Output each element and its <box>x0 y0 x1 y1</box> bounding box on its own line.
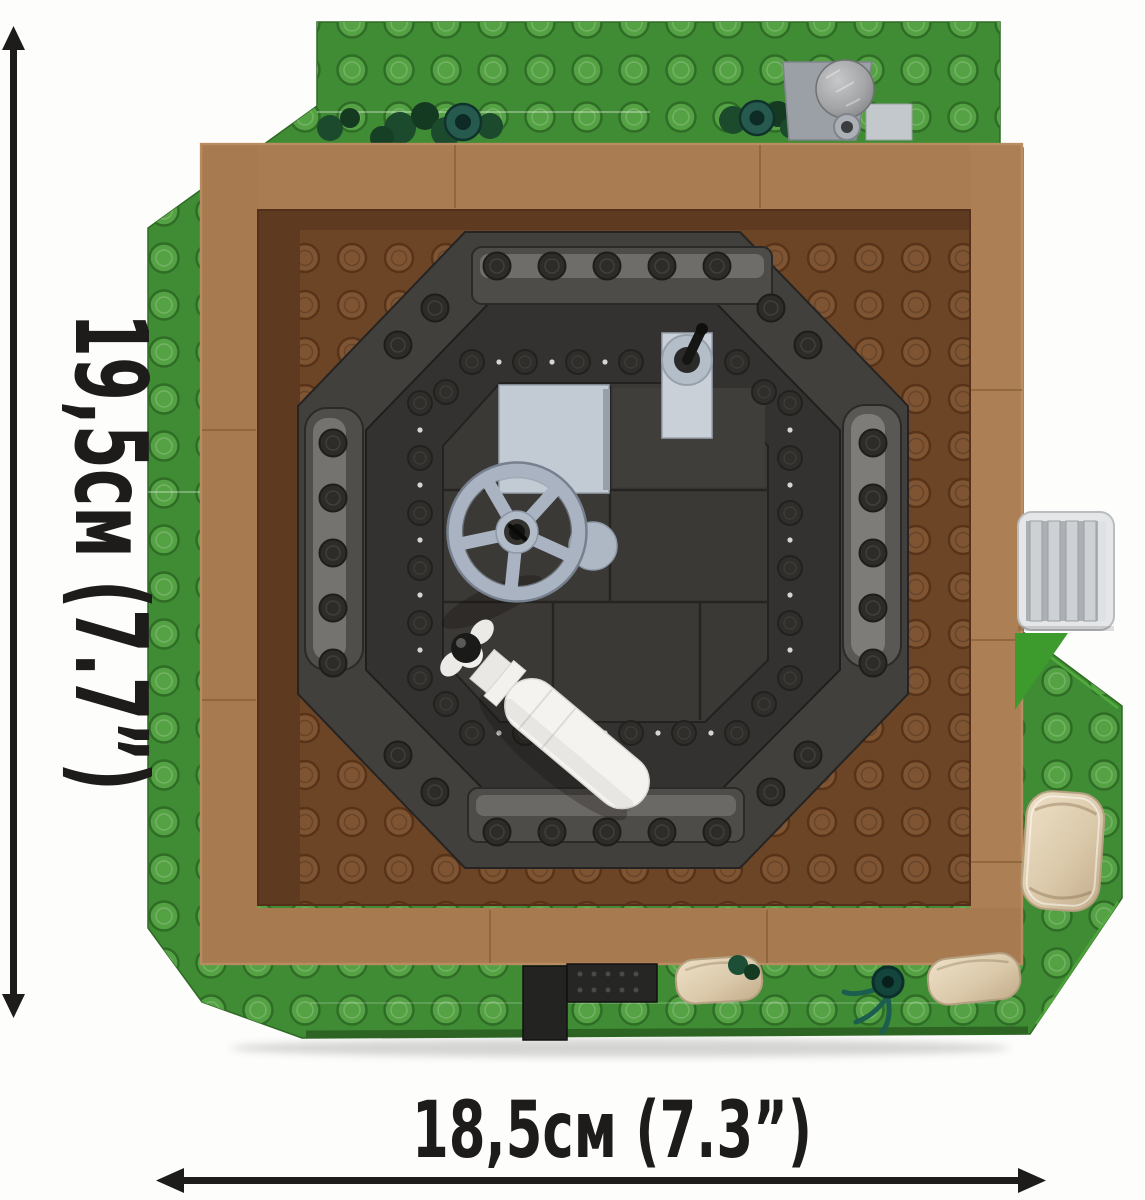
dimension-arrow-vertical <box>2 26 25 1018</box>
anti-stud-dot <box>787 592 792 597</box>
anti-stud-dot <box>417 482 422 487</box>
moat-stud <box>752 692 776 716</box>
ring-stud <box>422 779 449 806</box>
ring-stud <box>422 295 449 322</box>
ring-stud <box>320 540 347 567</box>
moat-stud <box>408 556 432 580</box>
ring-stud <box>860 430 887 457</box>
moat-stud <box>778 501 802 525</box>
anti-stud-dot <box>602 359 607 364</box>
anti-stud-dot <box>708 730 713 735</box>
ring-stud <box>385 332 412 359</box>
ring-stud <box>320 650 347 677</box>
anti-stud-dot <box>787 537 792 542</box>
ring-stud <box>860 540 887 567</box>
anti-stud-dot <box>655 730 660 735</box>
grille-dot <box>606 988 611 993</box>
moat-stud <box>408 501 432 525</box>
moat-stud <box>434 692 458 716</box>
courtyard-tile-margin <box>258 210 300 905</box>
anti-stud-dot <box>549 359 554 364</box>
grille-dot <box>634 972 639 977</box>
width-dimension-label: 18,5см (7.3”) <box>412 1086 812 1176</box>
ring-stud <box>860 595 887 622</box>
boulder-sphere <box>816 60 874 118</box>
moat-stud <box>434 380 458 404</box>
black-corner-piece <box>523 966 567 1040</box>
grille-dot <box>592 972 597 977</box>
grille-dot <box>634 988 639 993</box>
ring-stud <box>758 779 785 806</box>
wall-top <box>200 143 1023 210</box>
anti-stud-dot <box>417 592 422 597</box>
moat-stud <box>778 556 802 580</box>
courtyard-tile-margin <box>258 210 970 230</box>
ring-stud <box>484 253 511 280</box>
moat-stud <box>672 721 696 745</box>
anti-stud-dot <box>787 647 792 652</box>
plate-side-edge <box>306 1030 1028 1034</box>
moat-stud <box>725 721 749 745</box>
moat-stud <box>619 350 643 374</box>
anti-stud-dot <box>787 482 792 487</box>
ring-stud <box>320 485 347 512</box>
anti-stud-dot <box>417 427 422 432</box>
ring-stud <box>594 253 621 280</box>
moat-stud <box>460 350 484 374</box>
ring-stud <box>594 819 621 846</box>
ring-stud <box>795 332 822 359</box>
anti-stud-dot <box>417 537 422 542</box>
anti-stud-dot <box>496 359 501 364</box>
drop-shadow <box>230 1039 1010 1057</box>
anti-stud-dot <box>417 647 422 652</box>
ring-stud <box>860 485 887 512</box>
moat-stud <box>619 721 643 745</box>
periscope-lever <box>662 323 712 438</box>
moat-stud <box>778 446 802 470</box>
gray-tile <box>866 104 912 140</box>
moat-stud <box>725 350 749 374</box>
grille-dot <box>620 972 625 977</box>
wall-left <box>200 143 258 965</box>
ring-stud <box>649 253 676 280</box>
sandbag-small <box>675 955 764 1005</box>
black-grille-plate <box>567 964 657 1002</box>
grille-dot <box>620 988 625 993</box>
ring-stud <box>649 819 676 846</box>
grille-dot <box>592 988 597 993</box>
ring-stud <box>385 742 412 769</box>
ring-stud <box>795 742 822 769</box>
ring-stud <box>320 430 347 457</box>
wall-bottom <box>200 908 1023 965</box>
ring-stud <box>484 819 511 846</box>
moat-stud <box>778 611 802 635</box>
shell-ball-joint <box>451 633 481 663</box>
gray-plate-edge <box>603 389 610 490</box>
moat-stud <box>408 666 432 690</box>
ring-stud <box>704 253 731 280</box>
product-dimension-image: 19,5см (7.7”) 18,5см (7.3”) <box>0 0 1145 1200</box>
wall-right <box>970 143 1023 965</box>
ring-stud <box>320 595 347 622</box>
moat-stud <box>566 350 590 374</box>
moat-stud <box>752 380 776 404</box>
moat-stud <box>460 721 484 745</box>
anti-stud-dot <box>787 427 792 432</box>
moat-stud <box>513 350 537 374</box>
sandbag-large <box>1020 789 1106 912</box>
grille-dot <box>606 972 611 977</box>
grille-dot <box>578 988 583 993</box>
moat-stud <box>778 666 802 690</box>
ring-stud <box>539 253 566 280</box>
ring-stud <box>704 819 731 846</box>
moat-stud <box>408 446 432 470</box>
ladder <box>1018 512 1114 631</box>
moat-stud <box>778 391 802 415</box>
ring-stud <box>539 819 566 846</box>
moat-stud <box>408 391 432 415</box>
height-dimension-label: 19,5см (7.7”) <box>52 313 169 791</box>
ring-stud <box>860 650 887 677</box>
ring-stud <box>758 295 785 322</box>
moat-stud <box>408 611 432 635</box>
sandbag-small <box>926 951 1022 1006</box>
grille-dot <box>578 972 583 977</box>
